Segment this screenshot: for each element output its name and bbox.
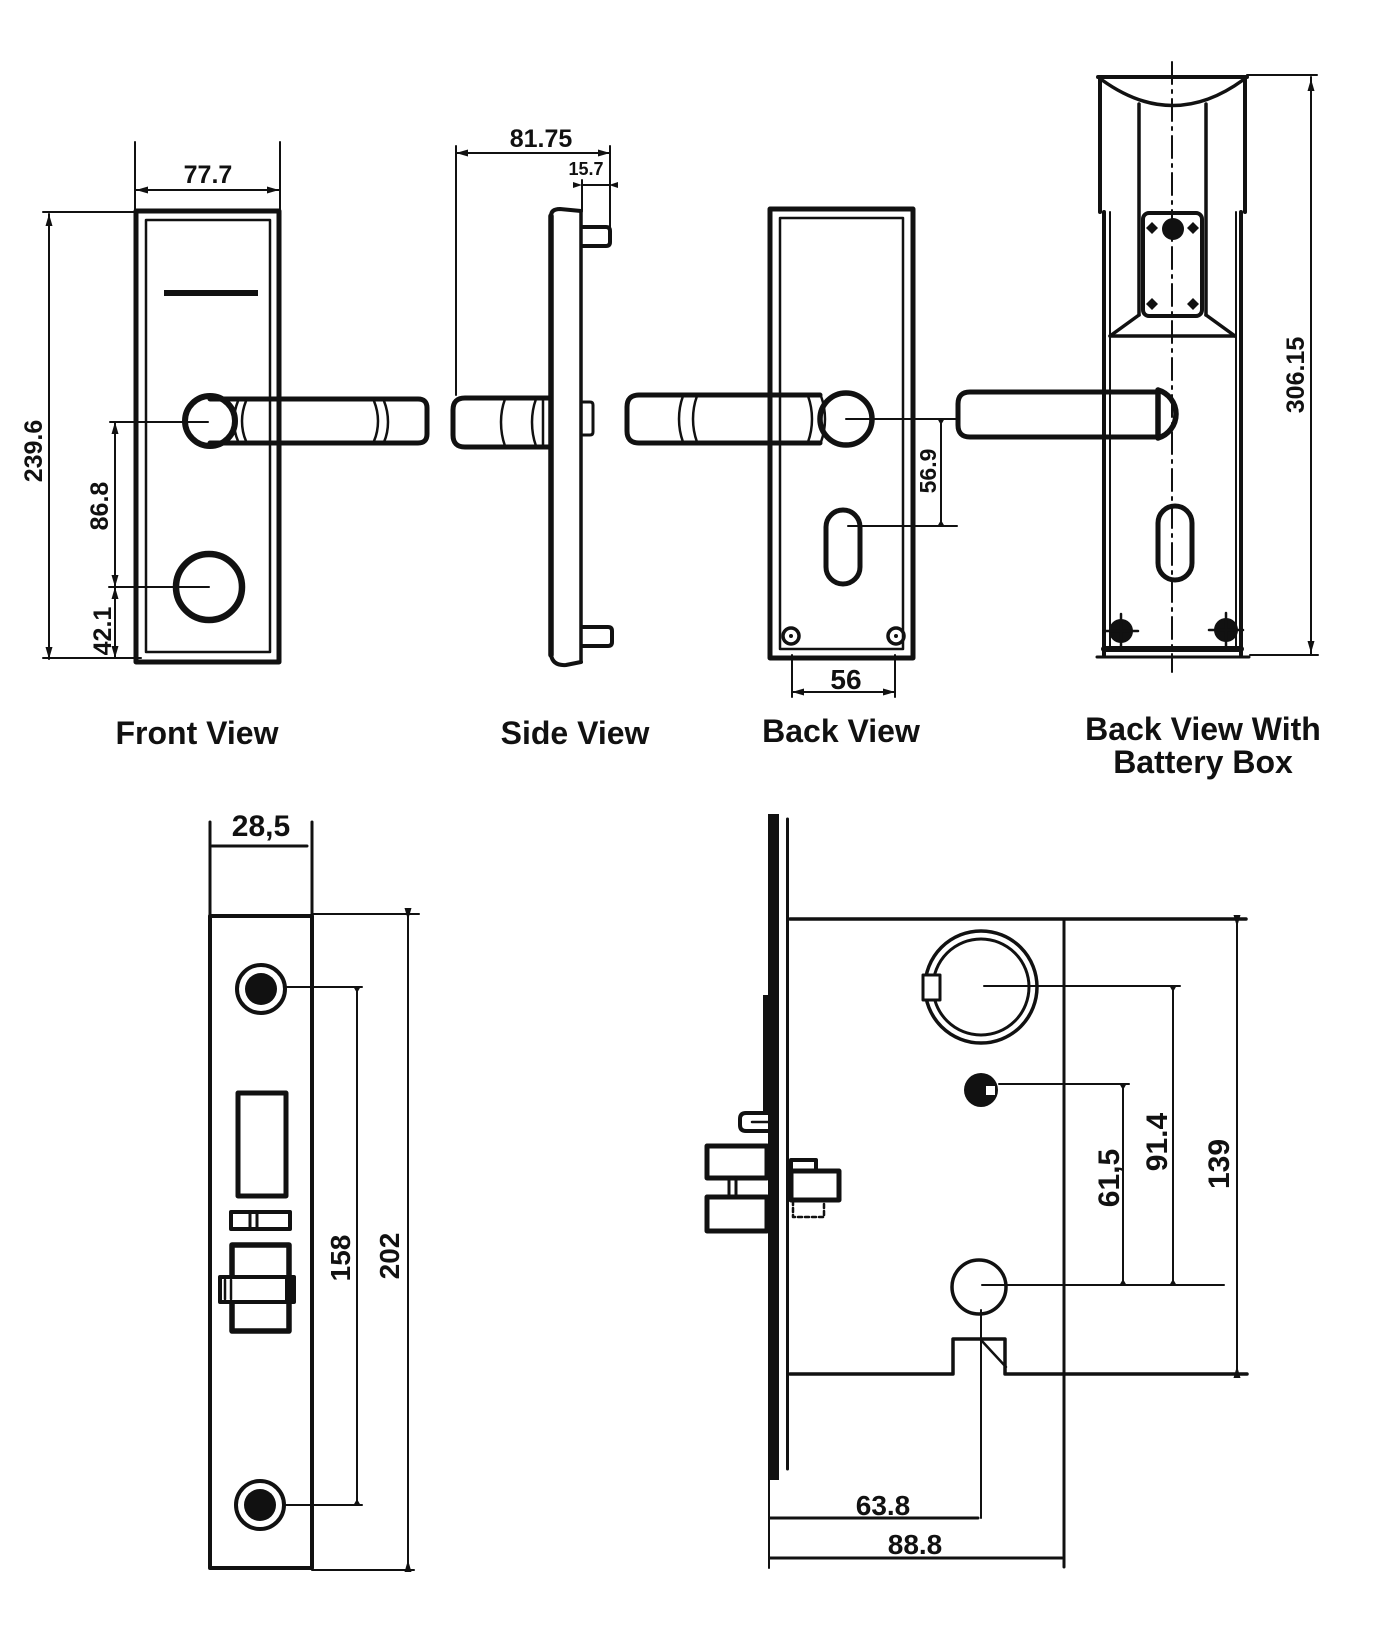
- svg-text:86.8: 86.8: [86, 482, 114, 531]
- svg-text:77.7: 77.7: [184, 161, 233, 189]
- svg-text:91.4: 91.4: [1141, 1112, 1174, 1171]
- svg-text:Battery Box: Battery Box: [1113, 744, 1293, 780]
- svg-text:306.15: 306.15: [1282, 337, 1310, 414]
- svg-text:Side View: Side View: [501, 715, 650, 751]
- svg-text:56: 56: [830, 664, 861, 695]
- svg-text:139: 139: [1203, 1139, 1236, 1189]
- svg-text:158: 158: [325, 1235, 356, 1282]
- svg-text:15.7: 15.7: [568, 159, 603, 179]
- svg-text:61,5: 61,5: [1093, 1149, 1126, 1207]
- svg-text:Front View: Front View: [116, 715, 279, 751]
- svg-text:202: 202: [374, 1233, 405, 1280]
- svg-text:Back View: Back View: [762, 713, 920, 749]
- svg-text:81.75: 81.75: [510, 125, 573, 153]
- svg-text:28,5: 28,5: [232, 810, 290, 843]
- svg-text:239.6: 239.6: [20, 420, 48, 483]
- svg-text:63.8: 63.8: [856, 1490, 911, 1521]
- svg-text:88.8: 88.8: [888, 1529, 943, 1560]
- svg-text:Back View With: Back View With: [1085, 711, 1321, 747]
- svg-text:56.9: 56.9: [915, 449, 941, 494]
